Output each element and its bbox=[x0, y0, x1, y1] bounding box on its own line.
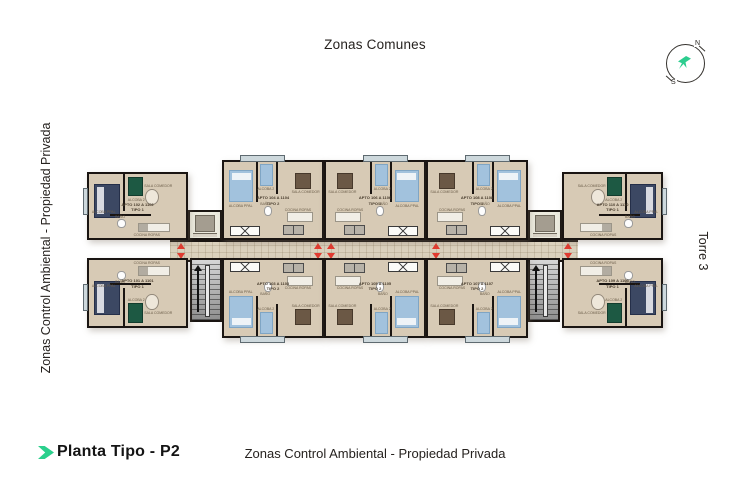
room-label: ALCOBA 2 bbox=[476, 307, 493, 311]
stair-rail bbox=[205, 265, 210, 317]
floor-plan-sheet: Zonas Comunes N S Zonas Control Ambienta… bbox=[0, 0, 750, 500]
kitchen-appliances bbox=[344, 225, 366, 235]
dining-table bbox=[337, 173, 354, 188]
room-label: ALCOBA PPAL bbox=[634, 284, 658, 288]
unit-apto-109: APTO 109 A 1109TIPO 1 ALCOBA PPAL ALCOBA… bbox=[562, 258, 663, 328]
elevator-door bbox=[193, 233, 217, 237]
room-label: ALCOBA PPAL bbox=[395, 290, 419, 294]
dining-table bbox=[439, 173, 456, 188]
room-label: COCINA ROPAS bbox=[285, 286, 311, 290]
room-label: SALA COMEDOR bbox=[292, 190, 320, 194]
room-label: SALA COMEDOR bbox=[578, 311, 606, 315]
unit-apto-104: APTO 104 A 1104TIPO 2 ALCOBA PPAL ALCOBA… bbox=[222, 160, 324, 240]
entry-arrow-up-icon bbox=[432, 243, 440, 249]
room-label: COCINA ROPAS bbox=[134, 261, 160, 265]
entry-arrow-up-icon bbox=[177, 243, 185, 249]
bed bbox=[128, 303, 144, 323]
room-label: ALCOBA 2 bbox=[374, 187, 391, 191]
elevator-door bbox=[533, 233, 557, 237]
bed bbox=[477, 312, 490, 333]
stair-direction-arrow-icon bbox=[532, 265, 540, 271]
balcony-window bbox=[465, 336, 510, 343]
room-label: COCINA ROPAS bbox=[439, 208, 465, 212]
room-label: COCINA ROPAS bbox=[285, 208, 311, 212]
room-label: BAÑO bbox=[480, 202, 490, 206]
bed bbox=[375, 312, 388, 333]
interior-wall bbox=[370, 304, 372, 336]
room-label: SALA COMEDOR bbox=[292, 304, 320, 308]
room-label: ALCOBA 2 bbox=[476, 187, 493, 191]
kitchen-appliances bbox=[446, 263, 468, 273]
stair-direction-arrow-icon bbox=[194, 265, 202, 271]
kitchen-appliances bbox=[283, 225, 305, 235]
crossed-window bbox=[490, 226, 520, 236]
bed bbox=[607, 177, 623, 196]
interior-wall bbox=[276, 304, 278, 336]
room-label: BAÑO bbox=[480, 292, 490, 296]
kitchen-counter bbox=[335, 212, 361, 222]
room-label: SALA COMEDOR bbox=[328, 190, 356, 194]
balcony-window bbox=[465, 155, 510, 162]
room-label: ALCOBA PPAL bbox=[395, 204, 419, 208]
kitchen-appliances bbox=[446, 225, 468, 235]
kitchen-appliances bbox=[283, 263, 305, 273]
kitchen-appliances bbox=[344, 263, 366, 273]
window bbox=[83, 188, 88, 215]
stair-direction-line bbox=[535, 270, 537, 312]
unit-apto-108: APTO 108 A 1108TIPO 2 ALCOBA PPAL ALCOBA… bbox=[426, 160, 528, 240]
window bbox=[83, 284, 88, 312]
room-label: ALCOBA 2 bbox=[128, 198, 145, 202]
bed bbox=[395, 296, 420, 328]
room-label: SALA COMEDOR bbox=[430, 304, 458, 308]
interior-wall bbox=[472, 304, 474, 336]
room-label: ALCOBA 2 bbox=[374, 307, 391, 311]
room-label: COCINA ROPAS bbox=[590, 261, 616, 265]
unit-furniture bbox=[89, 260, 186, 326]
bed bbox=[497, 296, 522, 328]
elevator-cab bbox=[195, 215, 215, 232]
unit-apto-102: APTO 102 A 1102TIPO 1 ALCOBA PPAL ALCOBA… bbox=[87, 172, 188, 240]
crossed-window bbox=[230, 262, 260, 272]
room-label: BAÑO bbox=[625, 280, 635, 284]
interior-wall bbox=[276, 162, 278, 194]
room-label: SALA COMEDOR bbox=[328, 304, 356, 308]
interior-wall bbox=[492, 296, 494, 336]
unit-apto-106: APTO 106 A 1106TIPO 2 ALCOBA PPAL ALCOBA… bbox=[324, 160, 426, 240]
unit-furniture bbox=[224, 260, 322, 336]
balcony-window bbox=[240, 336, 285, 343]
crossed-window bbox=[490, 262, 520, 272]
elevator-cab bbox=[535, 215, 555, 232]
toilet bbox=[264, 206, 272, 216]
room-label: ALCOBA PPAL bbox=[634, 210, 658, 214]
bed bbox=[260, 312, 273, 333]
toilet bbox=[624, 219, 633, 228]
room-label: ALCOBA 2 bbox=[605, 298, 622, 302]
interior-wall bbox=[123, 288, 125, 326]
kitchen-counter bbox=[138, 223, 171, 233]
toilet bbox=[117, 219, 126, 228]
unit-apto-107: APTO 107 A 1107TIPO 2 ALCOBA PPAL ALCOBA… bbox=[426, 258, 528, 338]
unit-apto-103: APTO 103 A 1103TIPO 2 ALCOBA PPAL ALCOBA… bbox=[222, 258, 324, 338]
room-label: SALA COMEDOR bbox=[144, 184, 172, 188]
compass-needle-icon bbox=[678, 56, 691, 69]
crossed-window bbox=[230, 226, 260, 236]
room-label: ALCOBA PPAL bbox=[497, 290, 521, 294]
stair-direction-line bbox=[197, 270, 199, 312]
bed bbox=[375, 164, 388, 185]
left-vertical-label: Zonas Control Ambiental - Propiedad Priv… bbox=[39, 123, 53, 374]
balcony-window bbox=[240, 155, 285, 162]
room-label: COCINA ROPAS bbox=[134, 233, 160, 237]
crossed-window bbox=[388, 262, 418, 272]
room-label: BAÑO bbox=[115, 215, 125, 219]
room-label: BAÑO bbox=[378, 292, 388, 296]
room-label: BAÑO bbox=[115, 280, 125, 284]
stairwell-left bbox=[190, 258, 222, 322]
unit-furniture bbox=[564, 260, 661, 326]
bed bbox=[607, 303, 623, 323]
interior-wall bbox=[472, 162, 474, 194]
room-label: COCINA ROPAS bbox=[439, 286, 465, 290]
toilet bbox=[376, 206, 384, 216]
room-label: BAÑO bbox=[625, 215, 635, 219]
unit-apto-101: APTO 101 A 1101TIPO 1 ALCOBA PPAL ALCOBA… bbox=[87, 258, 188, 328]
room-label: ALCOBA 2 bbox=[128, 298, 145, 302]
zonas-comunes-label: Zonas Comunes bbox=[0, 37, 750, 52]
entry-arrow-up-icon bbox=[327, 243, 335, 249]
kitchen-counter bbox=[138, 266, 171, 276]
interior-wall bbox=[625, 288, 627, 326]
kitchen-counter bbox=[437, 212, 463, 222]
tower-label: Torre 3 bbox=[696, 232, 710, 271]
interior-wall bbox=[370, 162, 372, 194]
room-label: SALA COMEDOR bbox=[430, 190, 458, 194]
room-label: ALCOBA 2 bbox=[257, 187, 274, 191]
room-label: SALA COMEDOR bbox=[578, 184, 606, 188]
dining-table bbox=[591, 294, 605, 311]
unit-apto-110: APTO 110 A 1110TIPO 1 ALCOBA PPAL ALCOBA… bbox=[562, 172, 663, 240]
dining-table bbox=[145, 294, 159, 311]
entry-arrow-up-icon bbox=[564, 243, 572, 249]
unit-apto-105: APTO 105 A 1105TIPO 2 ALCOBA PPAL ALCOBA… bbox=[324, 258, 426, 338]
kitchen-counter bbox=[580, 223, 613, 233]
room-label: COCINA ROPAS bbox=[337, 208, 363, 212]
room-label: ALCOBA PPAL bbox=[229, 290, 253, 294]
balcony-window bbox=[363, 336, 408, 343]
room-label: ALCOBA PPAL bbox=[497, 204, 521, 208]
kitchen-counter bbox=[287, 212, 313, 222]
dining-table bbox=[295, 309, 312, 324]
room-label: ALCOBA 2 bbox=[605, 198, 622, 202]
dining-table bbox=[439, 309, 456, 324]
elevator-core-right bbox=[528, 210, 562, 240]
bed bbox=[477, 164, 490, 185]
entry-arrow-up-icon bbox=[314, 243, 322, 249]
room-label: ALCOBA 2 bbox=[257, 307, 274, 311]
room-label: COCINA ROPAS bbox=[337, 286, 363, 290]
crossed-window bbox=[388, 226, 418, 236]
stair-rail bbox=[543, 265, 548, 317]
dining-table bbox=[295, 173, 312, 188]
room-label: SALA COMEDOR bbox=[144, 311, 172, 315]
interior-wall bbox=[256, 296, 258, 336]
room-label: BAÑO bbox=[260, 292, 270, 296]
window bbox=[662, 188, 667, 215]
room-label: ALCOBA PPAL bbox=[229, 204, 253, 208]
bed bbox=[128, 177, 144, 196]
bed bbox=[260, 164, 273, 185]
balcony-window bbox=[363, 155, 408, 162]
room-label: ALCOBA PPAL bbox=[92, 284, 116, 288]
room-label: ALCOBA PPAL bbox=[92, 210, 116, 214]
interior-wall bbox=[390, 296, 392, 336]
toilet bbox=[478, 206, 486, 216]
room-label: BAÑO bbox=[260, 202, 270, 206]
unit-furniture bbox=[428, 260, 526, 336]
stairwell-right bbox=[528, 258, 560, 322]
room-label: BAÑO bbox=[378, 202, 388, 206]
kitchen-counter bbox=[580, 266, 613, 276]
unit-furniture bbox=[326, 260, 424, 336]
footer-center-label: Zonas Control Ambiental - Propiedad Priv… bbox=[0, 446, 750, 461]
elevator-core-left bbox=[188, 210, 222, 240]
dining-table bbox=[337, 309, 354, 324]
window bbox=[662, 284, 667, 312]
bed bbox=[229, 296, 254, 328]
compass-icon: N S bbox=[666, 44, 705, 83]
room-label: COCINA ROPAS bbox=[590, 233, 616, 237]
